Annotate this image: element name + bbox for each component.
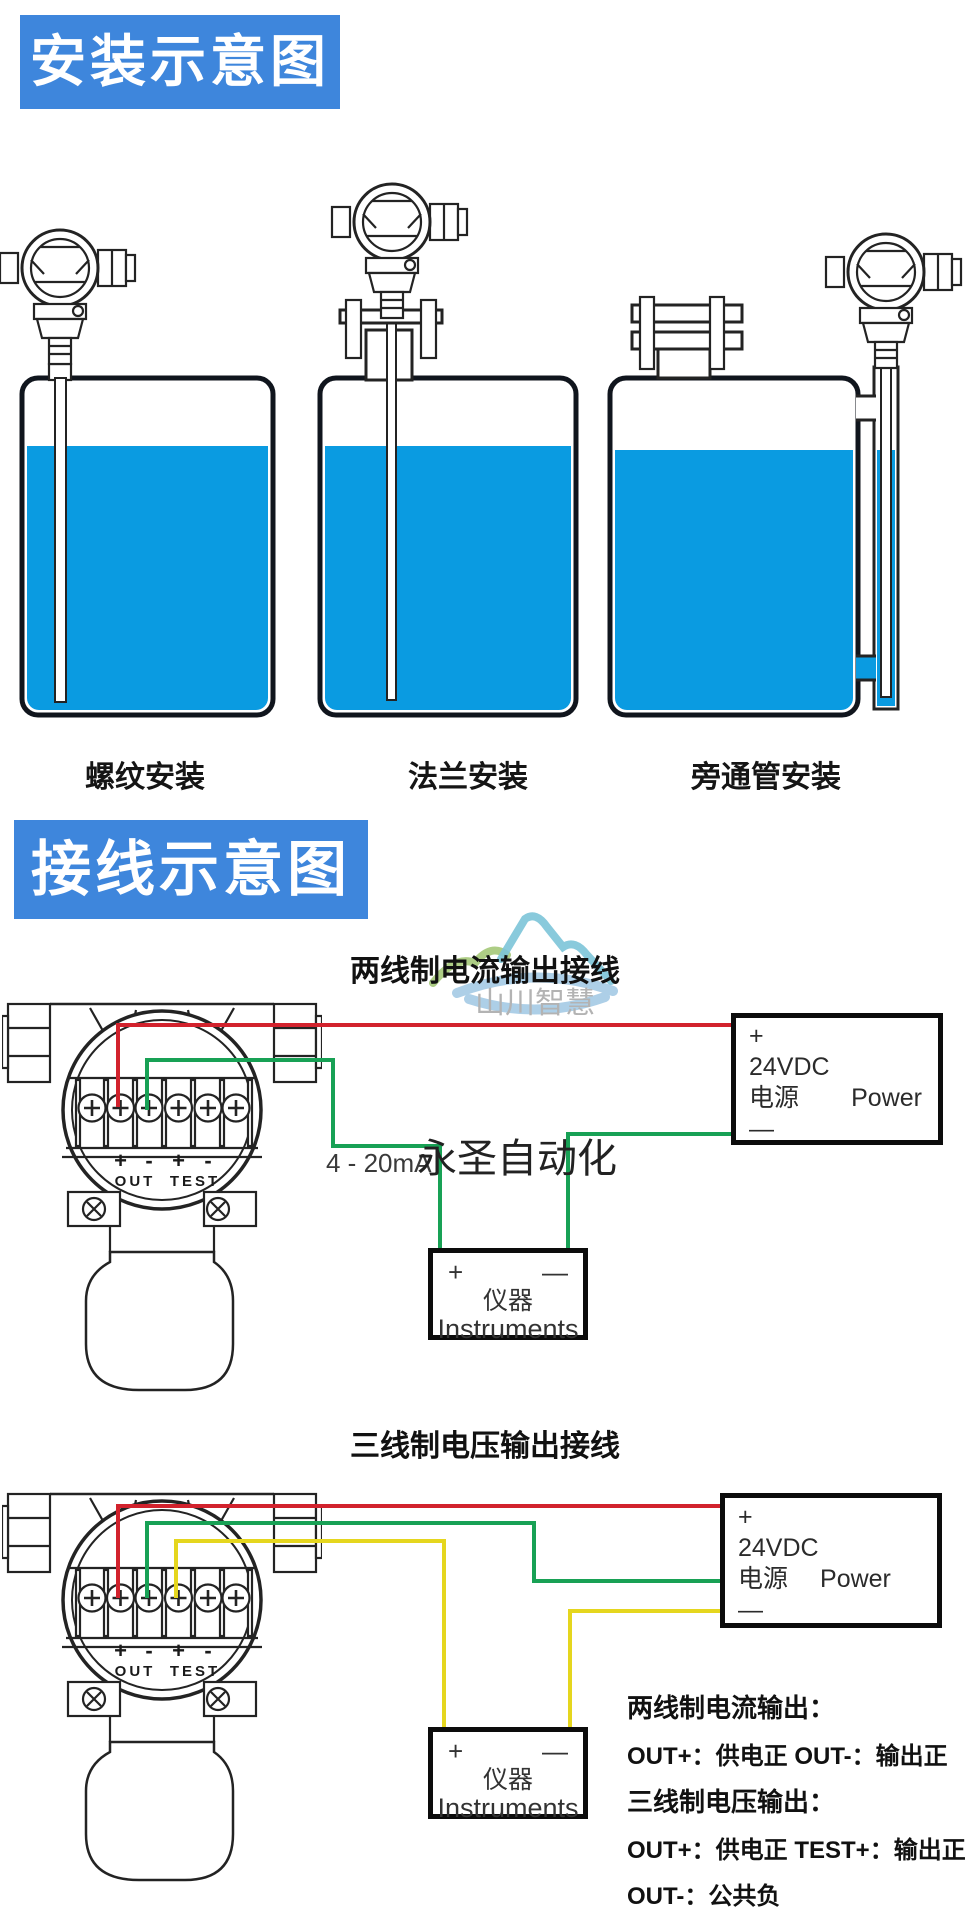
tank-threaded xyxy=(0,230,273,715)
mount-label-threaded: 螺纹安装 xyxy=(85,752,205,796)
power1-voltage: 24VDC xyxy=(736,1052,938,1083)
transmitter-1 xyxy=(0,230,135,364)
diagram2-title: 三线制电压输出接线 xyxy=(280,1421,690,1465)
instrument1-label-en: Instruments xyxy=(433,1315,583,1344)
note-line-1: 两线制电流输出： xyxy=(627,1688,957,1725)
tank3-bolt-left xyxy=(640,297,654,369)
wire-green-out-seg3 xyxy=(331,1058,335,1148)
tank3-water xyxy=(615,450,853,710)
note-line-5: OUT-：公共负 xyxy=(627,1876,957,1911)
bypass-stub-top xyxy=(856,396,876,420)
wiring-banner: 接线示意图 xyxy=(14,820,368,919)
signal-label-4-20ma: 4 - 20mA xyxy=(326,1148,432,1179)
note-line-2: OUT+：供电正 OUT-：输出正 xyxy=(627,1736,957,1771)
tank3-bolt-right xyxy=(710,297,724,369)
wire-red-vertical-d2 xyxy=(116,1504,120,1598)
wire-yellow-test-seg3 xyxy=(442,1539,446,1731)
tank-bypass xyxy=(610,234,961,715)
wire-red-vertical-d1 xyxy=(116,1023,120,1107)
mount-label-flange: 法兰安装 xyxy=(408,752,528,796)
mount-label-bypass: 旁通管安装 xyxy=(691,752,841,796)
power1-label-cn: 电源 xyxy=(749,1083,799,1114)
power2-label-cn: 电源 xyxy=(738,1564,788,1595)
power-box-2: + 24VDC 电源 Power — xyxy=(720,1493,942,1628)
tank2-water xyxy=(325,446,571,710)
wire-red-horizontal-d1 xyxy=(116,1023,735,1027)
tank3-nozzle xyxy=(658,349,710,378)
wire-yellow-test-seg1 xyxy=(174,1539,178,1598)
power2-voltage: 24VDC xyxy=(725,1533,937,1564)
note-line-4: OUT+：供电正 TEST+：输出正 xyxy=(627,1830,957,1865)
instrument1-plus: + xyxy=(448,1257,463,1288)
wire-yellow-return-vertical xyxy=(568,1609,572,1731)
tank2-flange-bolt-right xyxy=(421,300,436,358)
transmitter-2 xyxy=(332,184,467,318)
wire-green-out-seg1 xyxy=(145,1058,149,1110)
device-face-2 xyxy=(2,1488,322,1888)
wire-red-horizontal-d2 xyxy=(116,1504,726,1508)
wire-yellow-return-horizontal xyxy=(568,1609,726,1613)
wire-yellow-test-seg2 xyxy=(174,1539,446,1543)
wire-green-d2-seg1 xyxy=(145,1521,149,1598)
watermark-overlay-text: 永圣自动化 xyxy=(417,1126,617,1184)
wire-green-d2-seg2 xyxy=(145,1521,536,1525)
tank1-probe xyxy=(55,378,66,702)
note-line-3: 三线制电压输出： xyxy=(627,1782,957,1819)
tank3-probe xyxy=(881,367,891,697)
tank-flange xyxy=(320,184,576,715)
instrument2-label-cn: 仪器 xyxy=(433,1767,583,1794)
bypass-stub-bottom xyxy=(856,656,876,680)
wire-green-d2-seg4 xyxy=(532,1579,726,1583)
instrument2-minus: — xyxy=(542,1736,568,1767)
instrument2-plus: + xyxy=(448,1736,463,1767)
wire-green-d2-seg3 xyxy=(532,1521,536,1583)
wire-green-out-seg2 xyxy=(145,1058,335,1062)
instrument-box-2: + — 仪器 Instruments xyxy=(428,1727,588,1819)
power2-minus: — xyxy=(725,1595,937,1626)
power1-minus: — xyxy=(736,1114,938,1145)
power1-label-en: Power xyxy=(851,1083,922,1114)
tank2-flange-bolt-left xyxy=(346,300,361,358)
power-box-1: + 24VDC 电源 Power — xyxy=(731,1013,943,1145)
tank2-probe xyxy=(387,318,396,700)
power2-plus: + xyxy=(725,1498,937,1533)
diagram1-title: 两线制电流输出接线 xyxy=(280,946,690,990)
instrument2-label-en: Instruments xyxy=(433,1794,583,1823)
instrument-box-1: + — 仪器 Instruments xyxy=(428,1248,588,1340)
instrument1-minus: — xyxy=(542,1257,568,1288)
instrument1-label-cn: 仪器 xyxy=(433,1288,583,1315)
output-notes: 两线制电流输出： OUT+：供电正 OUT-：输出正 三线制电压输出： OUT+… xyxy=(627,1688,957,1920)
watermark-brand: 山川智慧 xyxy=(475,987,595,1020)
installation-diagram: + - + - OUT TEST xyxy=(0,0,966,810)
power2-label-en: Power xyxy=(820,1564,891,1595)
power1-plus: + xyxy=(736,1018,938,1052)
product-diagram-page: 安装示意图 xyxy=(0,0,966,1920)
transmitter-3 xyxy=(826,234,961,368)
